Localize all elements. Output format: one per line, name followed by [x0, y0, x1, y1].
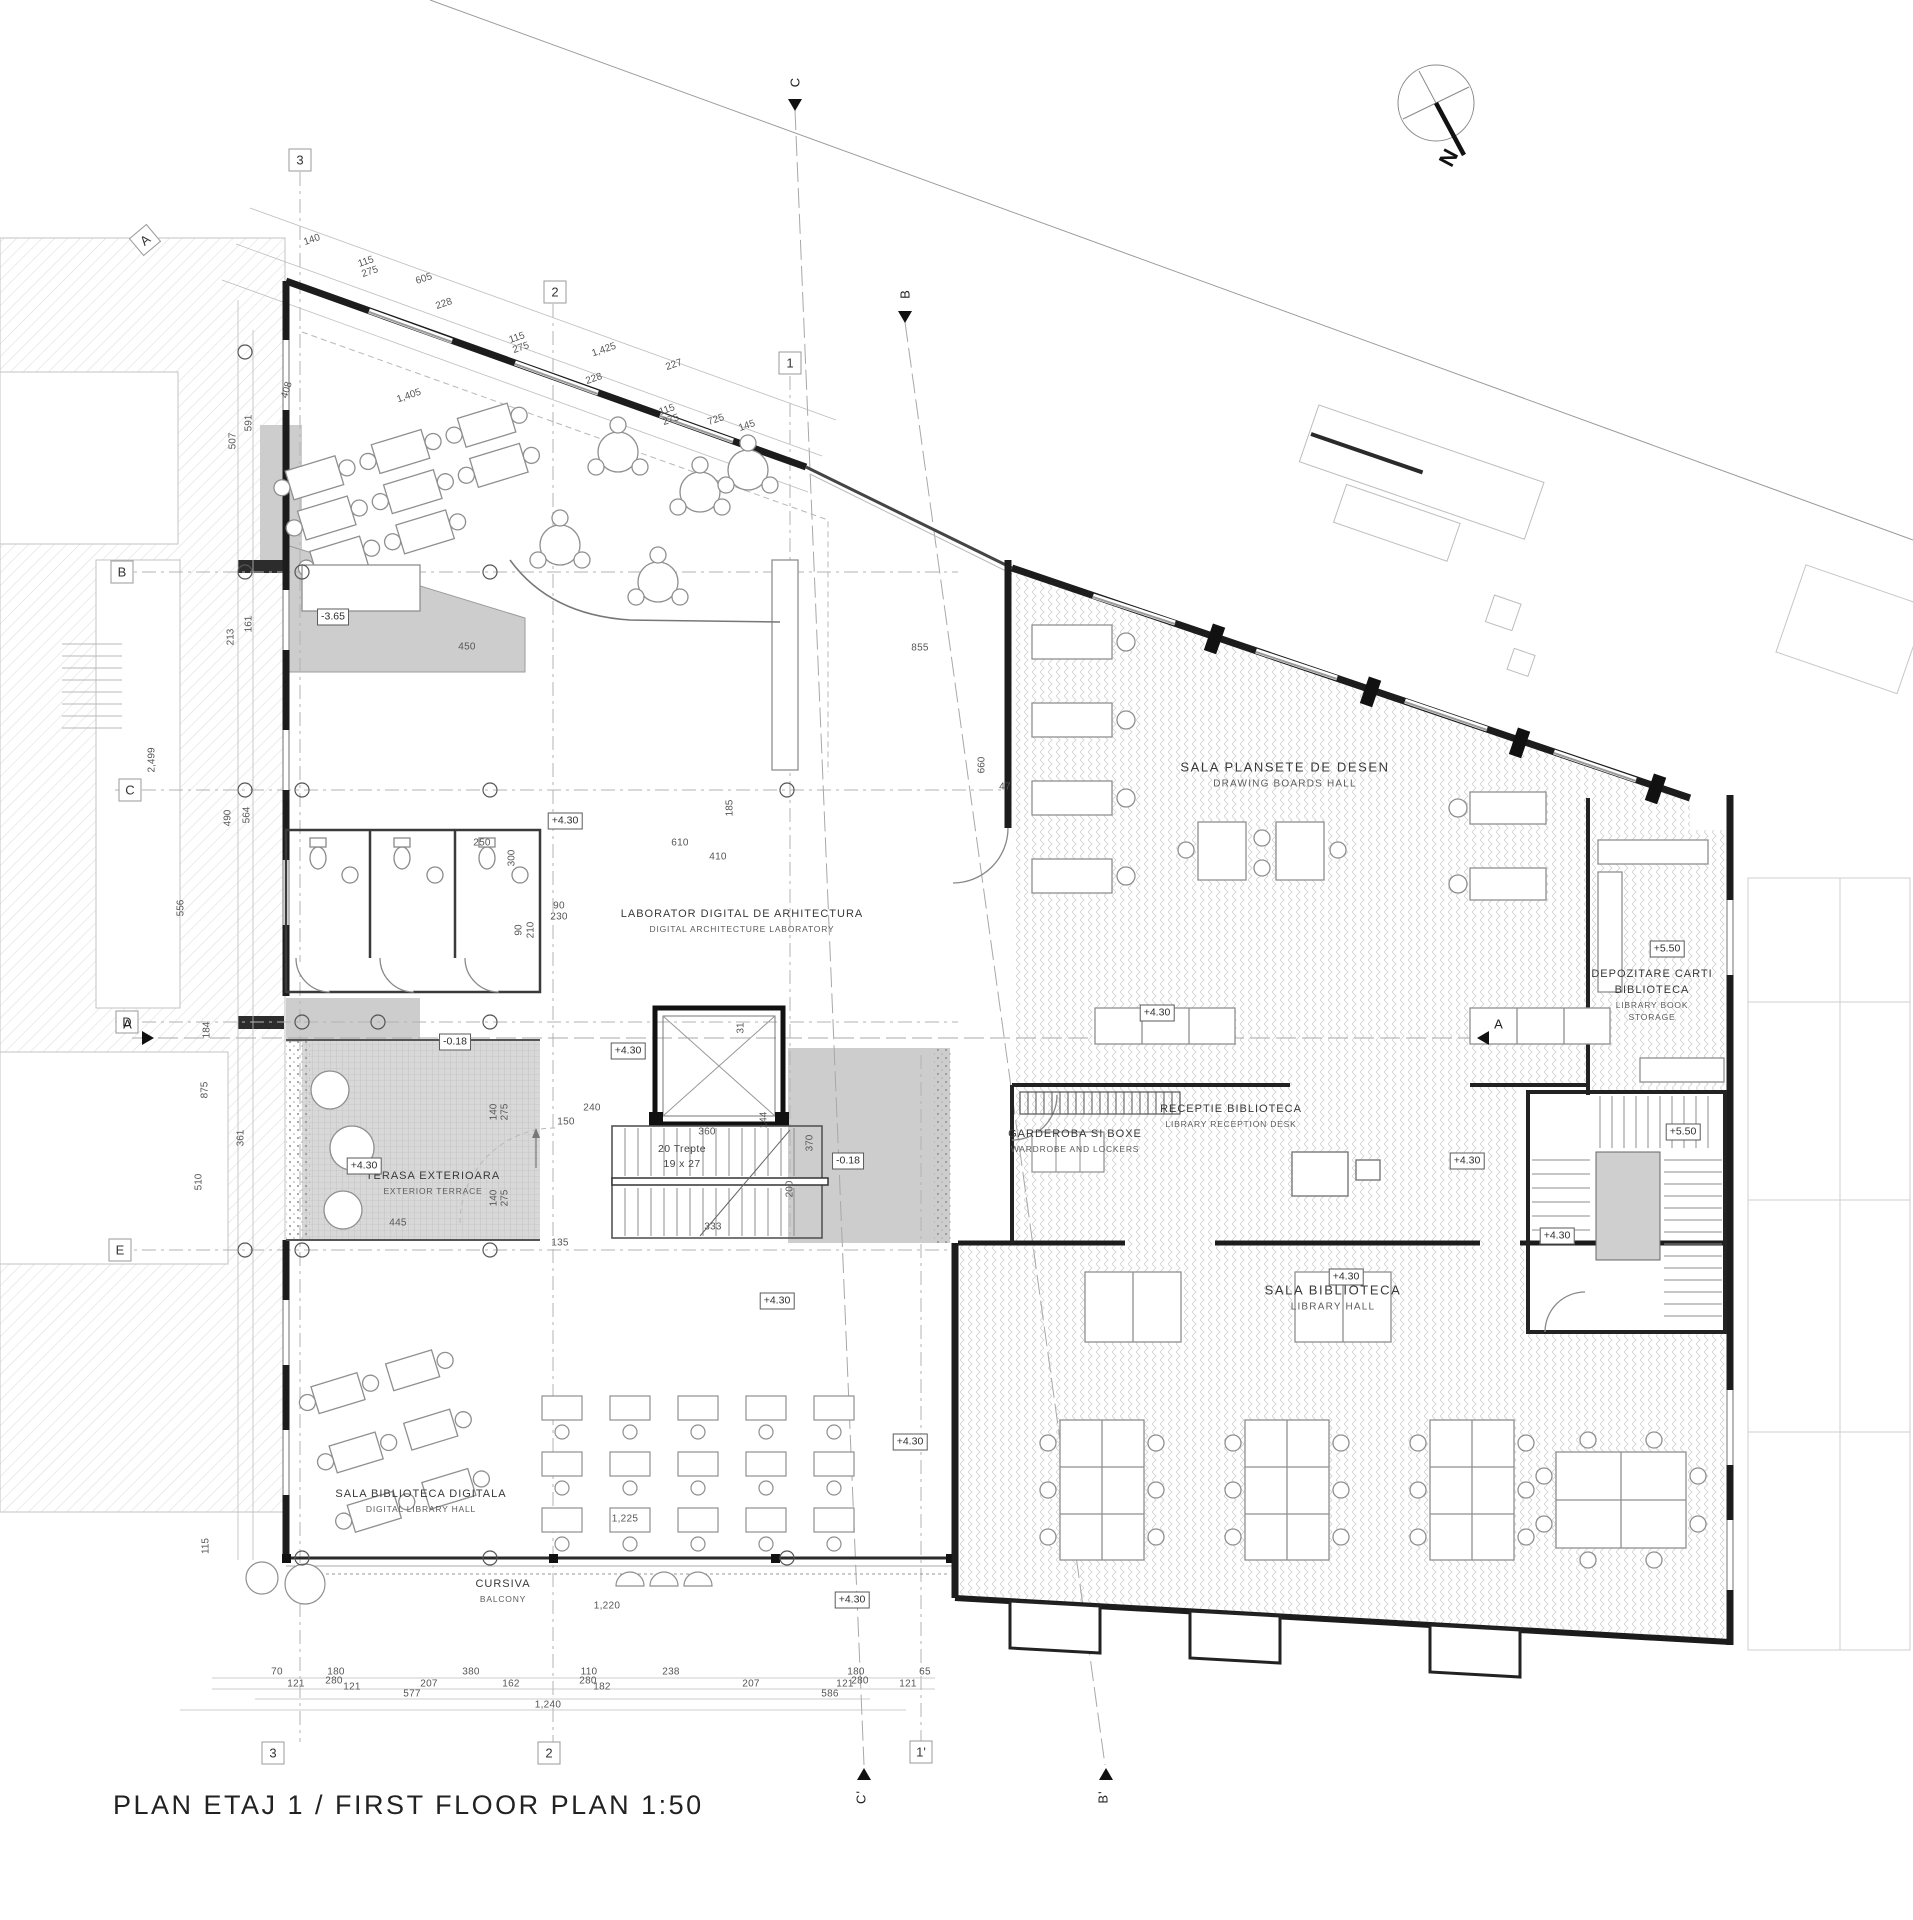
room-label-terrace: TERASA EXTERIOARA EXTERIOR TERRACE: [366, 1169, 500, 1197]
stair-note: 20 Trepte 19 x 27: [658, 1142, 706, 1172]
context-property-line: [430, 0, 1913, 540]
room-label-wardrobe: GARDEROBA SI BOXE WARDROBE AND LOCKERS: [1008, 1127, 1142, 1155]
room-label-digital-lab: LABORATOR DIGITAL DE ARHITECTURA DIGITAL…: [621, 907, 863, 935]
room-label-balcony: CURSIVA BALCONY: [475, 1577, 530, 1605]
context-top-right-buildings: [1284, 405, 1913, 694]
stair-core: [532, 1008, 828, 1238]
digital-library-desks-center: [542, 1396, 854, 1551]
room-label-library-hall: SALA BIBLIOTECA LIBRARY HALL: [1265, 1281, 1402, 1314]
page-title: PLAN ETAJ 1 / FIRST FLOOR PLAN 1:50: [113, 1790, 704, 1821]
floor-plan-sheet: N SALA PLANSETE DE DESEN DRAWING BOARDS …: [0, 0, 1913, 1920]
wc-block: [286, 830, 540, 992]
context-right-building: [1748, 878, 1910, 1650]
room-label-book-storage: DEPOZITARE CARTI BIBLIOTECA LIBRARY BOOK…: [1591, 967, 1712, 1024]
room-label-drawing-boards: SALA PLANSETE DE DESEN DRAWING BOARDS HA…: [1180, 758, 1389, 791]
plan-drawing: [0, 0, 1913, 1920]
lab-desks: [270, 399, 556, 585]
lab-round-tables: [530, 417, 778, 605]
context-left-building: [0, 238, 302, 1512]
room-label-digital-library: SALA BIBLIOTECA DIGITALA DIGITAL LIBRARY…: [335, 1487, 506, 1515]
north-compass: N: [1389, 63, 1499, 188]
room-label-reception: RECEPTIE BIBLIOTECA LIBRARY RECEPTION DE…: [1160, 1102, 1302, 1130]
